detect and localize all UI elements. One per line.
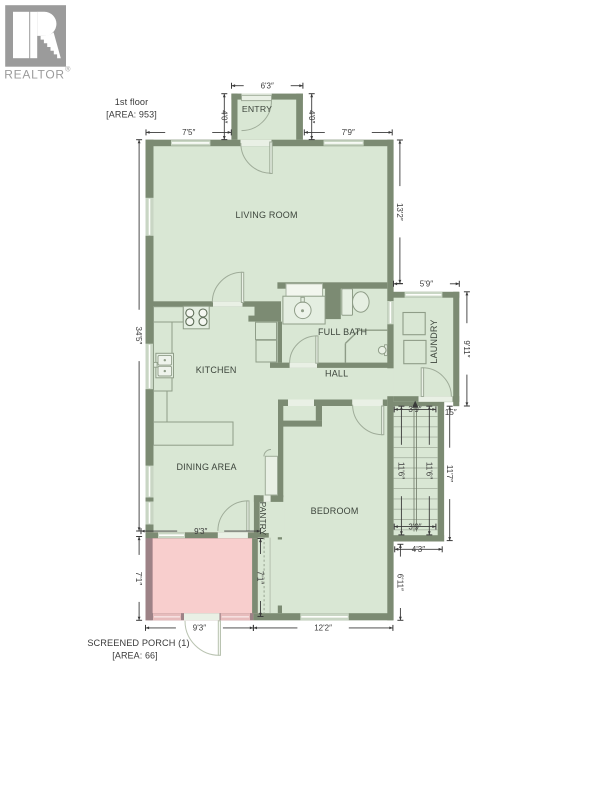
svg-text:4'0″: 4'0″ [219,110,228,123]
svg-text:6'3″: 6'3″ [261,82,274,91]
svg-text:13'2″: 13'2″ [395,203,404,221]
svg-text:KITCHEN: KITCHEN [196,365,237,375]
svg-text:7'1″: 7'1″ [134,572,143,585]
svg-text:34'5″: 34'5″ [134,327,143,345]
svg-text:LIVING ROOM: LIVING ROOM [235,210,297,220]
svg-text:[AREA: 953]: [AREA: 953] [106,109,157,119]
svg-text:BEDROOM: BEDROOM [311,506,359,516]
svg-text:9'3″: 9'3″ [193,624,206,633]
svg-text:FULL BATH: FULL BATH [318,327,367,337]
svg-text:7'5″: 7'5″ [182,128,195,137]
svg-text:6'11″: 6'11″ [396,574,405,591]
svg-text:5'9″: 5'9″ [420,280,433,289]
svg-text:12'2″: 12'2″ [314,624,332,633]
svg-text:4'3″: 4'3″ [412,545,425,554]
svg-text:15″: 15″ [445,408,457,417]
svg-text:HALL: HALL [325,369,348,379]
svg-text:PANTRY: PANTRY [258,502,267,536]
svg-text:REALTOR: REALTOR [4,68,64,82]
svg-text:DINING AREA: DINING AREA [176,462,236,472]
svg-text:1st floor: 1st floor [115,97,149,107]
svg-text:7'9″: 7'9″ [342,128,355,137]
svg-text:7'1″: 7'1″ [256,571,265,584]
svg-text:11'6″: 11'6″ [397,462,406,479]
svg-text:[AREA: 66]: [AREA: 66] [112,650,158,660]
svg-text:4'0″: 4'0″ [307,110,316,123]
svg-text:SCREENED PORCH (1): SCREENED PORCH (1) [87,638,189,648]
svg-text:11'7″: 11'7″ [445,465,454,482]
svg-text:9'3″: 9'3″ [194,527,207,536]
svg-text:LAUNDRY: LAUNDRY [429,319,439,363]
svg-text:9'11″: 9'11″ [462,340,471,357]
svg-text:®: ® [65,65,71,73]
svg-text:ENTRY: ENTRY [242,104,272,114]
svg-text:3'9″: 3'9″ [408,522,421,531]
svg-text:11'6″: 11'6″ [424,462,433,479]
svg-text:3'9″: 3'9″ [408,405,421,414]
